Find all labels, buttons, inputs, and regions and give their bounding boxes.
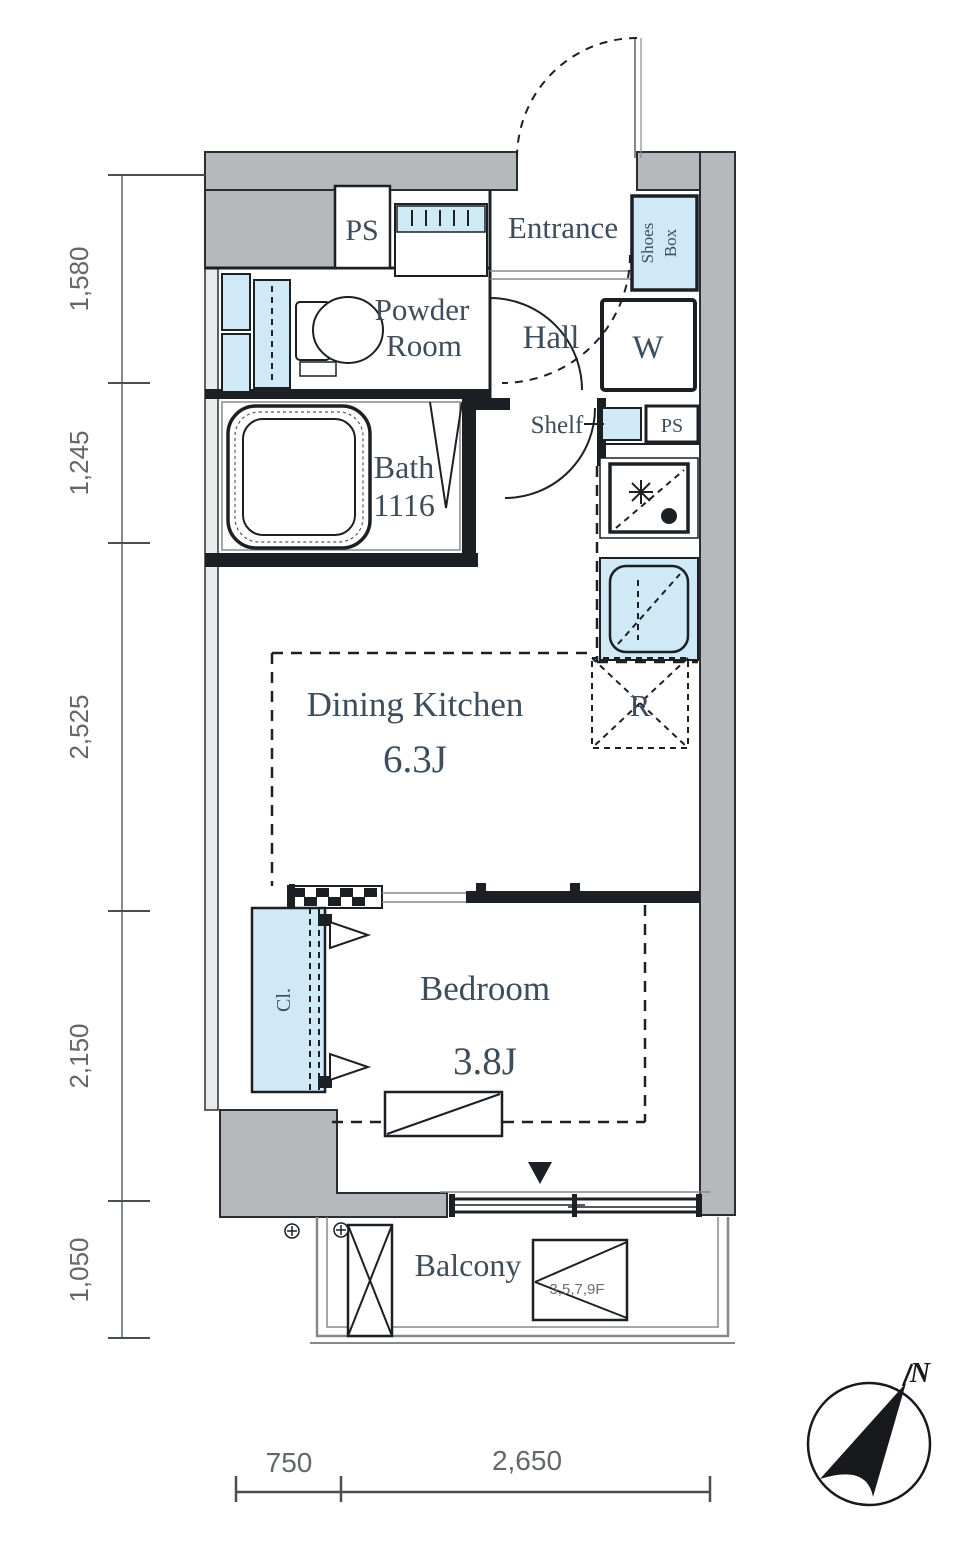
floor-level-marker	[533, 1240, 627, 1320]
dimension-line-left: 1,580 1,245 2,525 2,150 1,050	[64, 175, 205, 1338]
floor-levels-label: 3,5,7,9F	[549, 1281, 604, 1298]
window-end-left	[449, 1194, 455, 1217]
toilet-base	[300, 362, 336, 376]
closet-door-swing-bottom	[330, 1054, 368, 1080]
dim-label-2150: 2,150	[64, 1023, 94, 1088]
dim-label-2650: 2,650	[492, 1445, 562, 1476]
toilet-cabinet-1	[222, 274, 250, 330]
bedroom-window	[440, 1192, 710, 1217]
compass-arrow-icon	[820, 1383, 906, 1497]
entrance-label: Entrance	[508, 210, 618, 245]
dining-kitchen-size-label: 6.3J	[383, 738, 447, 781]
wall-bedroom-top	[466, 891, 700, 903]
bedroom-size-label: 3.8J	[453, 1040, 517, 1083]
bathtub-inner	[243, 419, 355, 535]
powder-room-label-2: Room	[386, 328, 462, 363]
hall-label: Hall	[523, 320, 580, 356]
shoes-box-label-1: Shoes	[638, 223, 657, 264]
floorplan-page: PS Entrance Shoes Box Powder Room Hall W…	[0, 0, 960, 1548]
window-marker-triangle	[528, 1162, 552, 1184]
fridge-label: R	[630, 688, 651, 723]
bedroom-label: Bedroom	[420, 969, 550, 1008]
north-label: N	[909, 1358, 932, 1389]
wall-top-band-right	[637, 152, 700, 190]
dim-label-750: 750	[266, 1447, 313, 1478]
dim-label-1050: 1,050	[64, 1237, 94, 1302]
stove-burner-icon	[629, 480, 653, 504]
wall-bath-right	[462, 395, 476, 567]
wall-hall-bottom	[466, 398, 510, 410]
drain-symbol-2	[334, 1223, 348, 1237]
window-mid-post	[572, 1194, 577, 1217]
dim-label-1245: 1,245	[64, 430, 94, 495]
wall-notch-2	[570, 883, 580, 891]
floor-level-box	[533, 1240, 627, 1320]
entrance-door-arc	[517, 38, 637, 158]
dim-label-1580: 1,580	[64, 246, 94, 311]
closet-door-swing-top	[330, 922, 368, 948]
ps-top-label: PS	[345, 214, 378, 247]
shelf-label: Shelf	[531, 412, 584, 439]
bath-size-label: 1116	[373, 487, 435, 523]
stove-knob-icon	[661, 508, 677, 524]
dimension-line-bottom: 750 2,650	[236, 1445, 710, 1502]
dim-label-2525: 2,525	[64, 694, 94, 759]
kitchen-stove	[610, 464, 688, 532]
floorplan-drawing: PS Entrance Shoes Box Powder Room Hall W…	[0, 0, 960, 1548]
wall-top-band-left	[205, 152, 517, 190]
window-end-right	[696, 1194, 702, 1217]
washer-label: W	[632, 330, 664, 366]
dining-kitchen-label: Dining Kitchen	[307, 685, 524, 724]
wall-notch-1	[476, 883, 486, 891]
powder-room-label-1: Powder	[375, 292, 470, 327]
wall-right-column	[700, 152, 735, 1215]
ps-side-label: PS	[661, 415, 683, 437]
wall-topleft-block	[205, 190, 335, 268]
dim-bottom-ticks	[236, 1476, 710, 1502]
bath-label: Bath	[374, 449, 434, 485]
wall-bath-bottom	[205, 553, 478, 567]
balcony-label: Balcony	[415, 1247, 522, 1283]
toilet-cabinet-2	[222, 334, 250, 392]
north-compass: N	[808, 1358, 932, 1505]
drain-symbol-1	[285, 1224, 299, 1238]
toilet-bowl-icon	[313, 297, 383, 363]
closet-label: Cl.	[273, 988, 295, 1012]
shoes-box-label-2: Box	[661, 228, 680, 257]
shelf-box	[602, 408, 641, 440]
